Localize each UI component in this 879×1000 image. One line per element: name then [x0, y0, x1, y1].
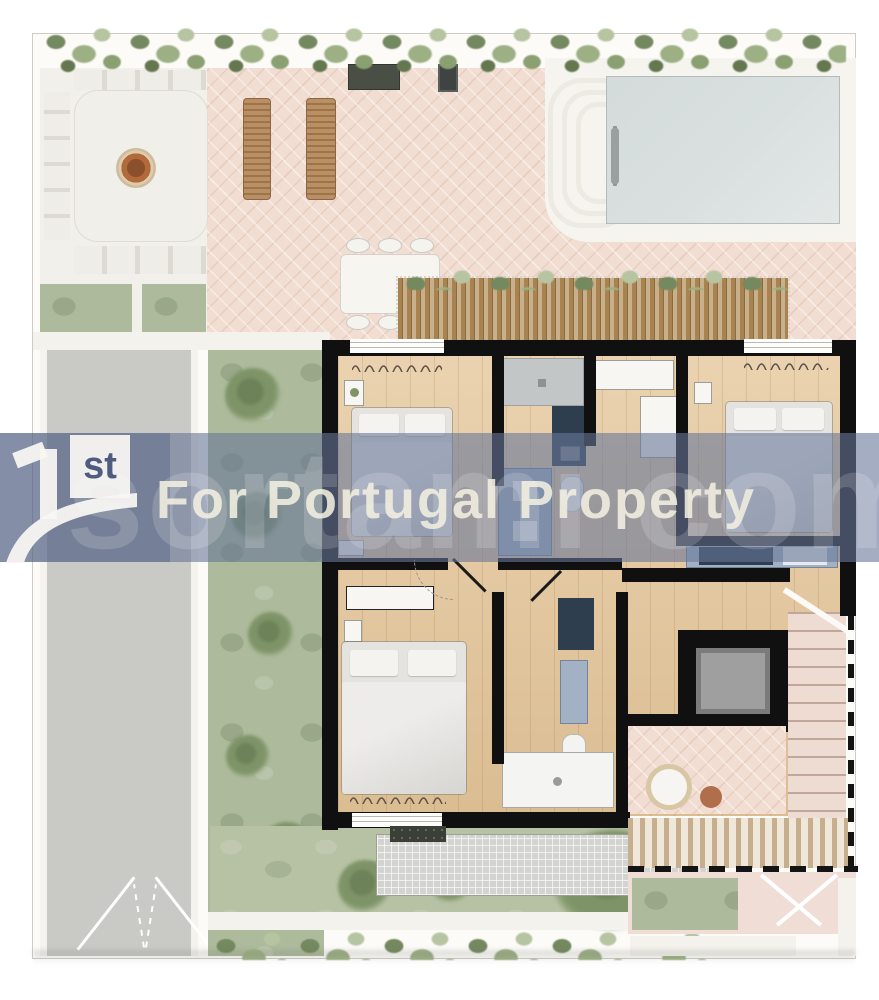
- shower-tray: [502, 752, 614, 808]
- closet: [592, 360, 674, 390]
- wall-left: [322, 340, 338, 830]
- top-hedge: [38, 22, 846, 76]
- bed: [342, 642, 466, 794]
- curtain-squiggle: [352, 362, 442, 372]
- paving-strip-bottom: [74, 246, 206, 274]
- terrace-green-patch: [632, 878, 738, 930]
- garden-bed: [142, 284, 206, 332]
- wall-bottom: [505, 812, 630, 828]
- paving-strip-left: [44, 92, 70, 240]
- garden-bed: [40, 284, 132, 332]
- shower: [498, 358, 584, 406]
- wall-art: [694, 382, 712, 404]
- wall-interior: [622, 568, 790, 582]
- curtain-squiggle: [350, 794, 446, 804]
- tree: [225, 368, 281, 424]
- boundary-dashed-bottom: [628, 866, 858, 872]
- agency-logo: 1 st: [4, 425, 156, 570]
- elevator-car: [696, 648, 770, 714]
- wall-interior: [492, 592, 504, 764]
- pergola-hedge: [398, 264, 788, 290]
- shower-drain: [553, 777, 562, 786]
- bathroom-cabinet: [558, 598, 594, 650]
- window: [350, 339, 444, 353]
- wicker-chair: [646, 764, 692, 810]
- sun-lounger: [306, 98, 336, 200]
- wall-art: [344, 620, 362, 642]
- garden-path-top: [33, 332, 330, 350]
- floor-plan-image: sortami com For Portugal Property 1 st: [0, 0, 879, 1000]
- window: [744, 339, 832, 353]
- curtain-squiggle: [744, 360, 830, 370]
- side-table: [700, 786, 722, 808]
- dining-chair: [346, 315, 370, 330]
- vanity: [560, 660, 588, 724]
- plant-icon: [350, 388, 359, 397]
- duvet: [342, 682, 466, 794]
- window: [352, 813, 442, 827]
- wall-interior: [616, 592, 628, 826]
- pillow: [734, 408, 776, 430]
- boundary-dashed-right: [848, 612, 854, 870]
- tree: [226, 735, 270, 779]
- pool-ladder: [611, 128, 619, 184]
- plan-shadow: [33, 950, 855, 964]
- pool-water: [606, 76, 840, 224]
- watermark-headline: For Portugal Property: [156, 469, 756, 531]
- sun-lounger: [243, 98, 271, 200]
- terrace-path: [838, 878, 856, 956]
- shower-drain: [538, 379, 546, 387]
- wall-interior: [616, 714, 788, 726]
- logo-numeral: 1: [40, 449, 57, 519]
- logo-st-badge: st: [70, 435, 130, 498]
- dining-chair: [378, 238, 402, 253]
- tree: [248, 612, 294, 658]
- lower-pergola: [628, 818, 848, 868]
- staircase: [788, 612, 846, 830]
- pillow: [350, 650, 398, 676]
- dining-chair: [410, 238, 434, 253]
- logo-swoosh-icon: [4, 487, 139, 565]
- wall-art: [344, 380, 364, 406]
- pillow: [408, 650, 456, 676]
- doormat: [390, 826, 446, 842]
- wardrobe: [346, 586, 434, 610]
- fire-pit: [116, 148, 156, 188]
- pillow: [782, 408, 824, 430]
- dining-chair: [346, 238, 370, 253]
